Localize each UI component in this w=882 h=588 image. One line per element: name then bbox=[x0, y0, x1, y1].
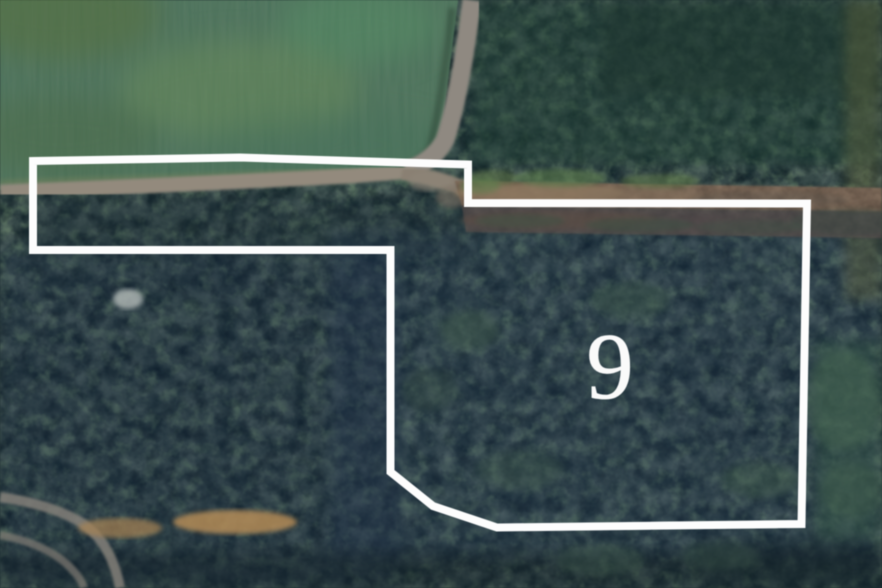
svg-text:9: 9 bbox=[587, 315, 634, 419]
